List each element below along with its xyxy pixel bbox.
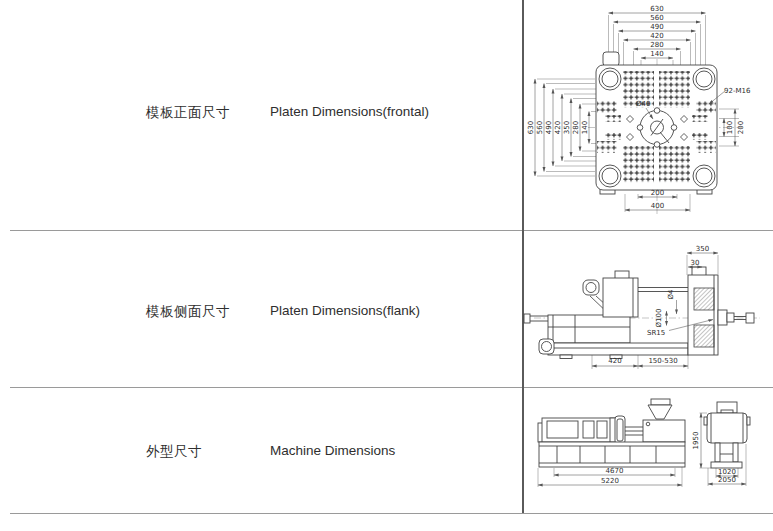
dim-left-490: 490	[545, 121, 553, 134]
dim-4670: 4670	[606, 467, 624, 475]
dim-30: 30	[691, 259, 700, 267]
dim-top-560: 560	[650, 14, 663, 22]
row2-label-cn: 模板侧面尺寸	[146, 303, 230, 321]
dim-1020: 1020	[718, 468, 736, 476]
dim-left-280: 280	[572, 121, 580, 134]
machine-dimensions-sheet: 模板正面尺寸 Platen Dimensions(frontal) 模板侧面尺寸…	[0, 0, 773, 531]
dim-bottom-200: 200	[651, 189, 664, 197]
dim-right-100: 100	[726, 121, 734, 134]
clamp-unit-side-view	[524, 267, 754, 359]
nozzle-dia-label: Ø4	[667, 289, 675, 300]
dim-350: 350	[696, 245, 709, 253]
dim-top-490: 490	[650, 23, 663, 31]
row1-label-en: Platen Dimensions(frontal)	[270, 104, 429, 119]
platen-frontal-drawing: 630 560 490 420 280 140 630 560 490 420 …	[520, 0, 773, 230]
machine-side-view	[538, 399, 685, 467]
dim-1950: 1950	[692, 432, 700, 450]
dim-420: 420	[608, 357, 621, 365]
dim-top-420: 420	[650, 32, 663, 40]
center-hole-label: Ø40	[636, 100, 650, 108]
dim-bottom-400: 400	[651, 202, 664, 210]
dim-top-630: 630	[650, 5, 663, 13]
row2-label-en: Platen Dimensions(flank)	[270, 303, 420, 318]
dim-right-200: 200	[737, 121, 745, 134]
bolt-pattern-label: 92-M16	[724, 87, 751, 95]
machine-end-view	[704, 402, 750, 468]
dim-150-530: 150-530	[648, 357, 677, 365]
dim-left-140: 140	[581, 121, 589, 134]
row3-label-en: Machine Dimensions	[270, 443, 395, 458]
dim-left-350: 350	[563, 121, 571, 134]
dim-left-560: 560	[536, 121, 544, 134]
ring-dia-label: Ø100	[655, 309, 663, 328]
platen-flank-drawing: 350 30 Ø4 Ø100 SR15 420 150-530	[520, 230, 773, 395]
dim-5220: 5220	[601, 477, 619, 485]
dim-left-420: 420	[554, 121, 562, 134]
sphere-radius-label: SR15	[647, 329, 665, 337]
row1-label-cn: 模板正面尺寸	[146, 104, 230, 122]
row3-label-cn: 外型尺寸	[146, 443, 202, 461]
dim-top-280: 280	[650, 41, 663, 49]
machine-dimensions-drawing: 4670 5220 1950 1020 2050	[520, 390, 773, 531]
dim-2050: 2050	[718, 476, 736, 484]
dim-top-140: 140	[650, 50, 663, 58]
dim-left-630: 630	[527, 121, 535, 134]
